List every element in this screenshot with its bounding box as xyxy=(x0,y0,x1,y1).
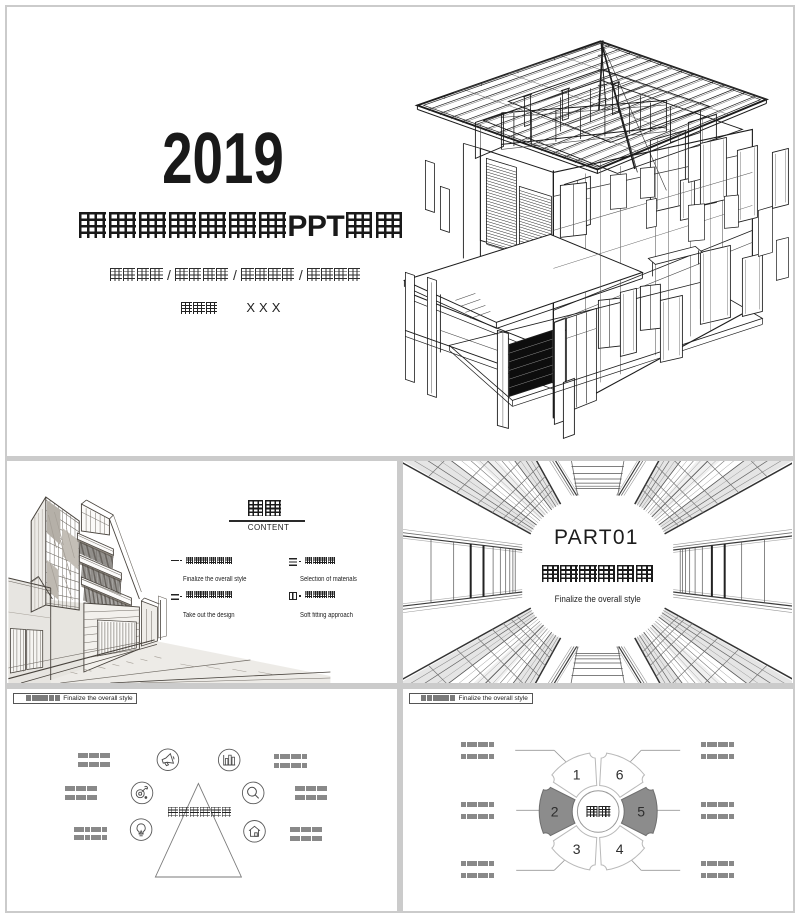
svg-text:6: 6 xyxy=(616,766,624,782)
svg-text:2: 2 xyxy=(551,804,559,820)
svg-text:3: 3 xyxy=(573,841,581,857)
svg-text:1: 1 xyxy=(573,766,581,782)
svg-text:5: 5 xyxy=(637,804,645,820)
svg-text:4: 4 xyxy=(616,841,624,857)
